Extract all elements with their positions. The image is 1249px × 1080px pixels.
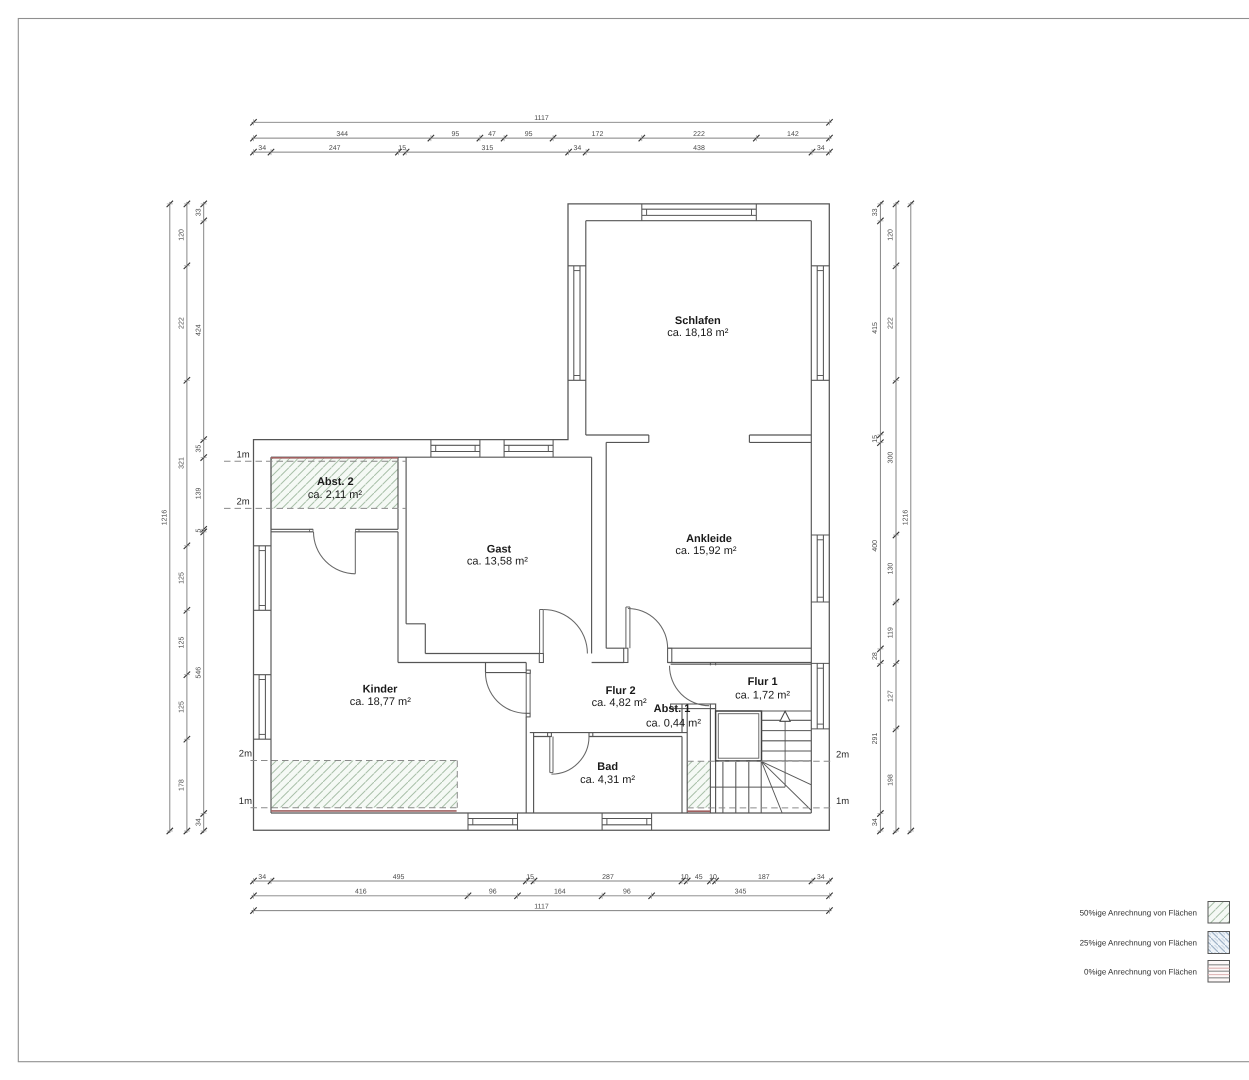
svg-text:Gast: Gast (487, 544, 512, 556)
svg-text:34: 34 (258, 145, 266, 152)
svg-text:125: 125 (179, 701, 186, 713)
svg-text:45: 45 (695, 874, 703, 881)
svg-text:2m: 2m (239, 749, 252, 760)
svg-text:546: 546 (195, 667, 202, 679)
svg-text:10: 10 (681, 874, 689, 881)
svg-text:34: 34 (872, 818, 879, 826)
svg-text:34: 34 (817, 874, 825, 881)
svg-text:291: 291 (872, 733, 879, 745)
svg-text:222: 222 (693, 131, 705, 138)
svg-text:95: 95 (452, 131, 460, 138)
svg-text:424: 424 (195, 324, 202, 336)
svg-text:28: 28 (872, 652, 879, 660)
svg-text:95: 95 (525, 131, 533, 138)
svg-text:120: 120 (888, 229, 895, 241)
svg-text:187: 187 (758, 874, 770, 881)
svg-text:34: 34 (817, 145, 825, 152)
svg-text:50%ige Anrechnung von Flächen: 50%ige Anrechnung von Flächen (1080, 909, 1197, 918)
svg-text:33: 33 (872, 208, 879, 216)
svg-text:315: 315 (482, 145, 494, 152)
svg-text:2m: 2m (836, 749, 849, 760)
svg-text:Abst. 1: Abst. 1 (654, 703, 691, 715)
svg-text:96: 96 (489, 889, 497, 896)
svg-text:ca. 18,77 m²: ca. 18,77 m² (350, 696, 411, 708)
svg-text:1216: 1216 (161, 510, 168, 526)
svg-text:34: 34 (195, 818, 202, 826)
svg-text:142: 142 (787, 131, 799, 138)
svg-text:400: 400 (872, 540, 879, 552)
svg-text:287: 287 (602, 874, 614, 881)
svg-text:222: 222 (888, 317, 895, 329)
svg-text:25%ige Anrechnung von Flächen: 25%ige Anrechnung von Flächen (1080, 939, 1197, 948)
svg-text:345: 345 (735, 889, 747, 896)
svg-text:Schlafen: Schlafen (675, 315, 721, 327)
svg-text:416: 416 (355, 889, 367, 896)
svg-text:321: 321 (179, 457, 186, 469)
svg-text:125: 125 (179, 637, 186, 649)
svg-text:ca. 4,82 m²: ca. 4,82 m² (592, 697, 647, 709)
svg-text:Bad: Bad (597, 761, 618, 773)
svg-text:96: 96 (623, 889, 631, 896)
svg-text:ca. 1,72 m²: ca. 1,72 m² (735, 689, 790, 701)
svg-text:125: 125 (179, 572, 186, 584)
svg-text:164: 164 (554, 889, 566, 896)
svg-text:ca. 13,58 m²: ca. 13,58 m² (467, 555, 528, 567)
svg-text:ca. 15,92 m²: ca. 15,92 m² (675, 545, 736, 557)
svg-text:5: 5 (195, 529, 202, 533)
svg-text:ca. 4,31 m²: ca. 4,31 m² (580, 774, 635, 786)
svg-text:33: 33 (195, 208, 202, 216)
svg-text:10: 10 (709, 874, 717, 881)
svg-text:438: 438 (693, 145, 705, 152)
svg-text:15: 15 (526, 874, 534, 881)
svg-text:15: 15 (872, 435, 879, 443)
svg-text:ca. 0,44 m²: ca. 0,44 m² (646, 718, 701, 730)
svg-text:Abst. 2: Abst. 2 (317, 476, 354, 488)
svg-text:247: 247 (329, 145, 341, 152)
svg-text:34: 34 (258, 874, 266, 881)
svg-text:415: 415 (872, 322, 879, 334)
svg-text:35: 35 (195, 445, 202, 453)
svg-text:495: 495 (393, 874, 405, 881)
svg-text:ca. 2,11 m²: ca. 2,11 m² (308, 489, 363, 501)
svg-text:15: 15 (398, 145, 406, 152)
svg-text:1m: 1m (239, 796, 252, 807)
svg-text:ca. 18,18 m²: ca. 18,18 m² (667, 327, 728, 339)
svg-text:34: 34 (574, 145, 582, 152)
svg-text:178: 178 (179, 779, 186, 791)
svg-text:198: 198 (888, 774, 895, 786)
svg-text:Flur 2: Flur 2 (606, 685, 636, 697)
svg-text:47: 47 (488, 131, 496, 138)
svg-text:1216: 1216 (902, 510, 909, 526)
svg-text:172: 172 (592, 131, 604, 138)
svg-text:130: 130 (888, 563, 895, 575)
svg-text:2m: 2m (236, 497, 249, 508)
svg-text:120: 120 (179, 229, 186, 241)
svg-text:344: 344 (336, 131, 348, 138)
svg-text:1117: 1117 (534, 903, 549, 910)
svg-text:1117: 1117 (534, 115, 549, 122)
svg-text:Ankleide: Ankleide (686, 533, 732, 545)
svg-text:222: 222 (179, 317, 186, 329)
svg-text:119: 119 (888, 627, 895, 638)
svg-text:1m: 1m (836, 796, 849, 807)
svg-text:1m: 1m (236, 449, 249, 460)
svg-text:139: 139 (195, 487, 202, 499)
svg-text:127: 127 (888, 690, 895, 702)
svg-text:Kinder: Kinder (363, 684, 399, 696)
svg-text:0%ige Anrechnung von Flächen: 0%ige Anrechnung von Flächen (1084, 967, 1197, 976)
svg-text:Flur 1: Flur 1 (748, 676, 778, 688)
svg-text:300: 300 (888, 452, 895, 464)
